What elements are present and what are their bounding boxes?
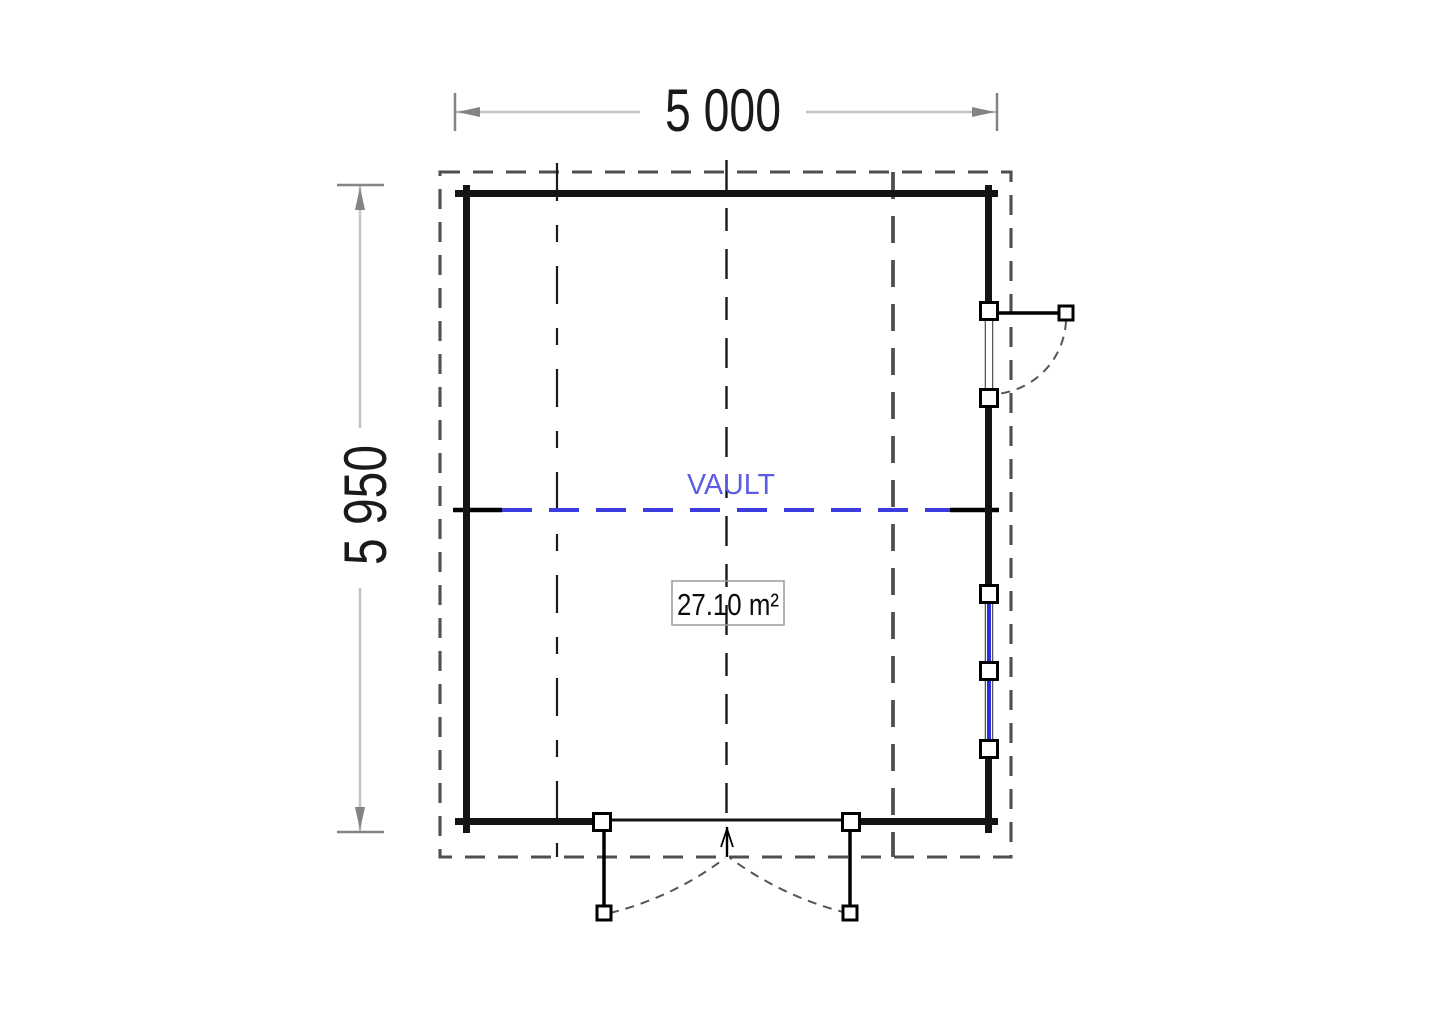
window [981,586,998,758]
double-door-leaf-end-block-left [597,906,611,920]
window-frame-block-bottom [981,741,998,758]
height-dimension: 5 950 [332,185,399,832]
height-dim-arrow-top [355,187,365,210]
double-door-swing-arc-left [610,858,725,913]
double-door-frame-block-right [843,814,860,831]
door-swing-arc [996,321,1066,394]
width-dim-arrow-right [972,107,995,117]
height-dimension-label: 5 950 [332,445,399,565]
height-dim-arrow-bottom [355,807,365,830]
window-frame-block-middle [981,663,998,680]
double-door-frame-block-left [594,814,611,831]
walls [455,185,998,833]
vault-label: VAULT [687,469,775,501]
width-dimension-label: 5 000 [665,77,781,144]
width-dim-arrow-left [457,107,480,117]
double-door-leaf-end-block-right [843,906,857,920]
door-frame-block-bottom [981,390,998,407]
single-door [981,303,1074,407]
floor-plan-drawing: 5 000 5 950 VAULT 27.10 m² [0,0,1445,1022]
door-frame-block-top [981,303,998,320]
width-dimension: 5 000 [455,77,997,144]
area-label: 27.10 m² [677,587,779,622]
floor-plan-canvas: 5 000 5 950 VAULT 27.10 m² [0,0,1445,1022]
door-leaf-end-block [1059,306,1073,320]
window-frame-block-top [981,586,998,603]
double-door-swing-arc-right [730,858,847,913]
double-door [594,814,860,921]
floor-area: 27.10 m² [672,581,784,625]
